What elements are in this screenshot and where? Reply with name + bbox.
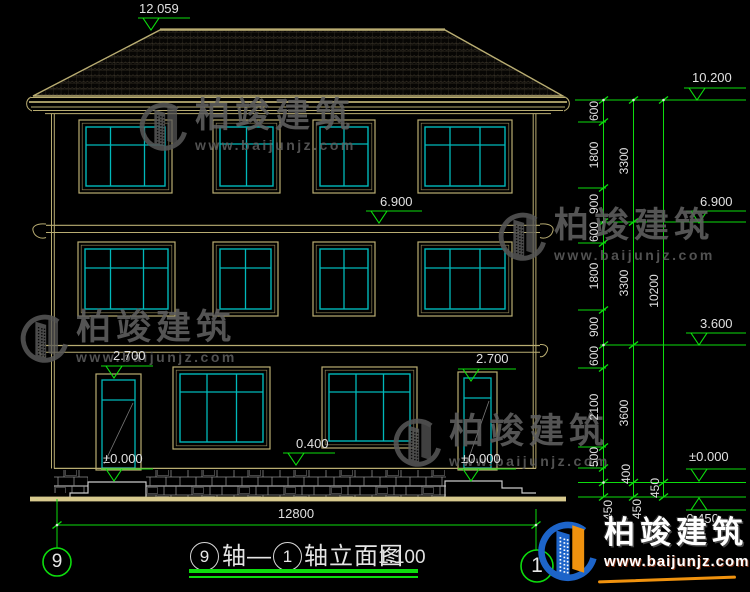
hip-roof — [33, 29, 563, 96]
watermark-name: 柏竣建筑 — [76, 310, 237, 345]
dim-label: 500 — [588, 447, 600, 467]
title-axis-bubble-left: 9 — [190, 542, 219, 571]
level-label-zero-right: ±0.000 — [689, 450, 729, 463]
level-label-floor3: 6.900 — [380, 195, 413, 208]
dim-label: 3600 — [618, 400, 630, 427]
floor-band-upper — [33, 224, 553, 238]
watermark-name: 柏竣建筑 — [554, 208, 715, 243]
watermark-logo-icon — [17, 310, 71, 370]
level-label-floor3-right: 6.900 — [700, 195, 733, 208]
dim-label: 10200 — [648, 274, 660, 307]
window — [78, 242, 175, 316]
title-axis-bubble-right: 1 — [273, 542, 302, 571]
cad-elevation-screenshot: 柏竣建筑 www.baijunjz.com 柏竣建筑 www.baijunjz.… — [0, 0, 750, 592]
level-label-door-right: 2.700 — [476, 352, 509, 365]
dim-label: 450 — [649, 478, 661, 498]
watermark-url: www.baijunjz.com — [195, 137, 356, 153]
axis-bubble-left: 9 — [52, 551, 63, 573]
watermark: 柏竣建筑 www.baijunjz.com — [495, 208, 715, 268]
brand-logo-url: www.baijunjz.com — [604, 553, 749, 570]
dim-label: 600 — [588, 101, 600, 121]
dim-label: 1800 — [588, 263, 600, 290]
watermark-logo-icon — [136, 98, 190, 158]
ground-line — [30, 497, 566, 502]
watermark-name: 柏竣建筑 — [195, 98, 356, 133]
level-label-floor2-right: 3.600 — [700, 317, 733, 330]
title-underline-thick — [189, 569, 418, 573]
windows-floor1 — [173, 367, 417, 449]
window — [313, 242, 375, 316]
dim-overall-width: 12800 — [278, 507, 314, 520]
watermark-url: www.baijunjz.com — [554, 247, 715, 263]
brand-logo-icon — [534, 517, 600, 589]
watermark-url: www.baijunjz.com — [76, 349, 237, 365]
level-label-ridge: 12.059 — [139, 2, 179, 15]
brand-logo-name: 柏竣建筑 — [604, 517, 749, 548]
watermark-name: 柏竣建筑 — [449, 414, 610, 449]
windows-floor2 — [78, 242, 512, 316]
level-label-door-left: 2.700 — [113, 349, 146, 362]
window — [173, 367, 270, 449]
window — [213, 242, 278, 316]
dim-label: 900 — [588, 194, 600, 214]
dim-label: 600 — [588, 222, 600, 242]
level-label-zero-door-right: ±0.000 — [461, 452, 501, 465]
level-label-zero-left: ±0.000 — [103, 452, 143, 465]
watermark: 柏竣建筑 www.baijunjz.com — [136, 98, 356, 158]
level-label-eave: 10.200 — [692, 71, 732, 84]
watermark-logo-icon — [390, 414, 444, 474]
dim-label: 1800 — [588, 142, 600, 169]
level-label-sill: 0.400 — [296, 437, 329, 450]
title-underline-thin — [189, 576, 418, 578]
title-scale: 1:100 — [378, 548, 426, 567]
steps-right — [445, 481, 536, 497]
dim-label: 900 — [588, 317, 600, 337]
dim-label: 3300 — [618, 148, 630, 175]
window — [418, 120, 512, 193]
dim-label: 600 — [588, 346, 600, 366]
title-text-mid: 轴— — [222, 545, 272, 569]
dim-label: 400 — [620, 464, 632, 484]
dim-label: 2100 — [588, 394, 600, 421]
watermark-logo-icon — [495, 208, 549, 268]
dim-label: 3300 — [618, 270, 630, 297]
